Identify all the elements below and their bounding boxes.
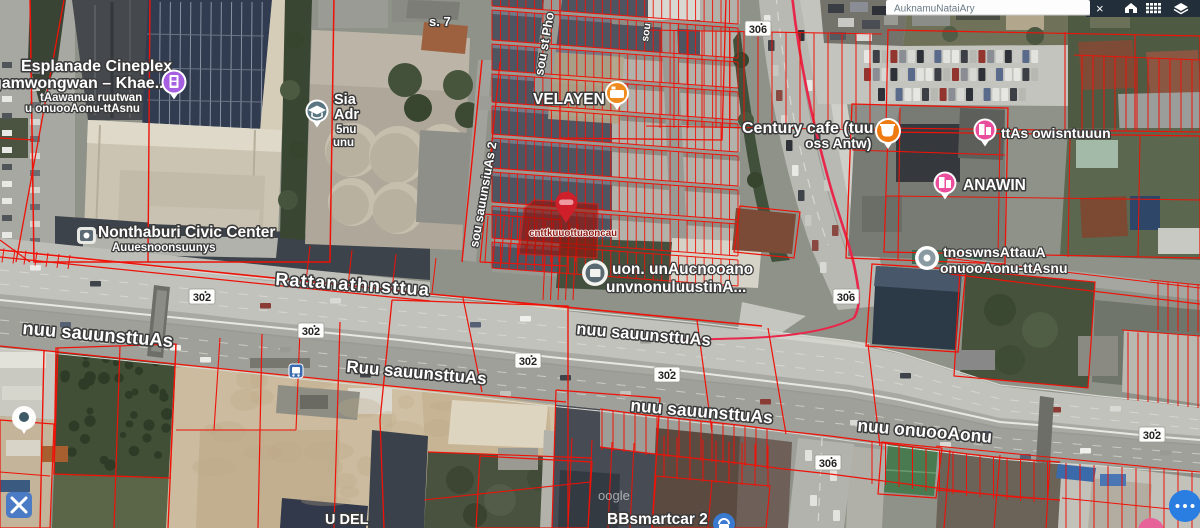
svg-text:AuknamuNataiAry: AuknamuNataiAry bbox=[894, 4, 975, 15]
svg-text:Nonthaburi Civic Center: Nonthaburi Civic Center bbox=[98, 224, 275, 241]
svg-text:306: 306 bbox=[819, 458, 837, 470]
svg-text:Sia: Sia bbox=[334, 92, 357, 108]
svg-text:oss Antw): oss Antw) bbox=[805, 135, 871, 151]
svg-text:Esplanade Cineplex: Esplanade Cineplex bbox=[21, 58, 172, 75]
svg-text:ANAWIN: ANAWIN bbox=[963, 177, 1026, 194]
svg-text:unvnonuluustinA...: unvnonuluustinA... bbox=[606, 279, 746, 296]
svg-text:unu: unu bbox=[333, 137, 354, 149]
svg-text:onuooAonu-ttAsnu: onuooAonu-ttAsnu bbox=[940, 260, 1068, 276]
svg-text:uon. unAucnooano: uon. unAucnooano bbox=[612, 261, 753, 278]
svg-text:cnttkuuottuaoncau: cnttkuuottuaoncau bbox=[529, 228, 617, 239]
svg-text:gamwongwan – Khae...: gamwongwan – Khae... bbox=[0, 75, 168, 92]
svg-text:tnoswnsAttauA: tnoswnsAttauA bbox=[943, 244, 1046, 260]
svg-text:306: 306 bbox=[837, 292, 855, 304]
svg-text:×: × bbox=[1096, 1, 1104, 16]
svg-text:oogle: oogle bbox=[598, 488, 630, 503]
svg-text:U DEL: U DEL bbox=[325, 512, 369, 528]
svg-text:VELAYEN: VELAYEN bbox=[533, 91, 605, 108]
svg-text:302: 302 bbox=[519, 356, 537, 368]
svg-text:5nu: 5nu bbox=[336, 124, 356, 136]
svg-text:302: 302 bbox=[193, 292, 211, 304]
svg-text:ttAs owisntuuun: ttAs owisntuuun bbox=[1001, 125, 1111, 141]
svg-text:Adr: Adr bbox=[334, 107, 359, 123]
svg-text:302: 302 bbox=[302, 326, 320, 338]
svg-text:302: 302 bbox=[1143, 430, 1161, 442]
svg-text:306: 306 bbox=[749, 24, 767, 36]
svg-text:u onuooAonu-ttAsnu: u onuooAonu-ttAsnu bbox=[25, 103, 140, 115]
svg-text:BBsmartcar 2: BBsmartcar 2 bbox=[607, 511, 708, 528]
svg-text:Auuesnoonsuunys: Auuesnoonsuunys bbox=[112, 242, 216, 254]
svg-text:s. 7: s. 7 bbox=[429, 14, 451, 29]
svg-text:302: 302 bbox=[658, 370, 676, 382]
